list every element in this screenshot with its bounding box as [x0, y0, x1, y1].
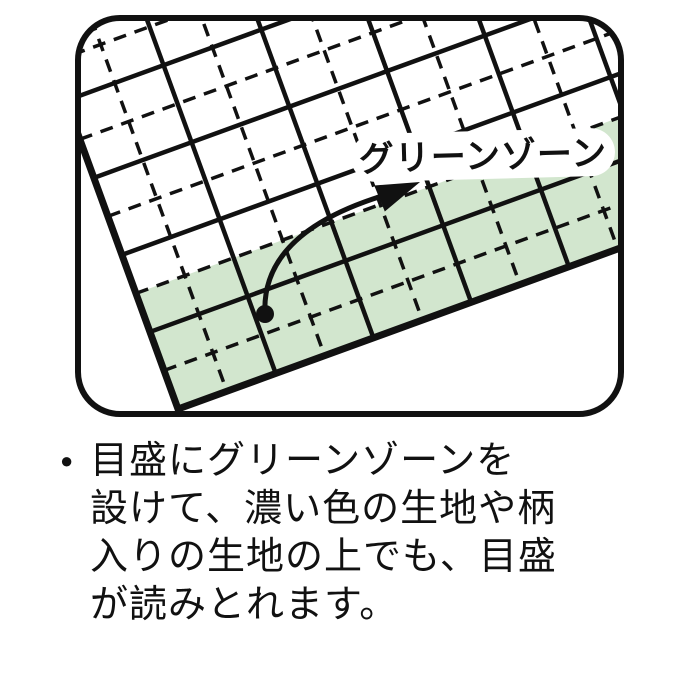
note-bullet-icon: ●	[60, 437, 90, 485]
caption-line-3: 入りの生地の上でも、目盛	[90, 533, 557, 581]
caption-line-1: 目盛にグリーンゾーンを	[90, 437, 557, 485]
caption-text: 目盛にグリーンゾーンを 設けて、濃い色の生地や柄 入りの生地の上でも、目盛 が読…	[90, 437, 557, 629]
green-zone-label: グリーンゾーン	[358, 134, 607, 179]
callout-dot	[256, 305, 274, 323]
caption: ● 目盛にグリーンゾーンを 設けて、濃い色の生地や柄 入りの生地の上でも、目盛 …	[60, 437, 660, 629]
caption-line-2: 設けて、濃い色の生地や柄	[90, 485, 557, 533]
green-zone-illustration: グリーンゾーン	[0, 0, 700, 450]
frame-interior: グリーンゾーン	[0, 0, 700, 422]
caption-line-4: が読みとれます。	[90, 581, 557, 629]
